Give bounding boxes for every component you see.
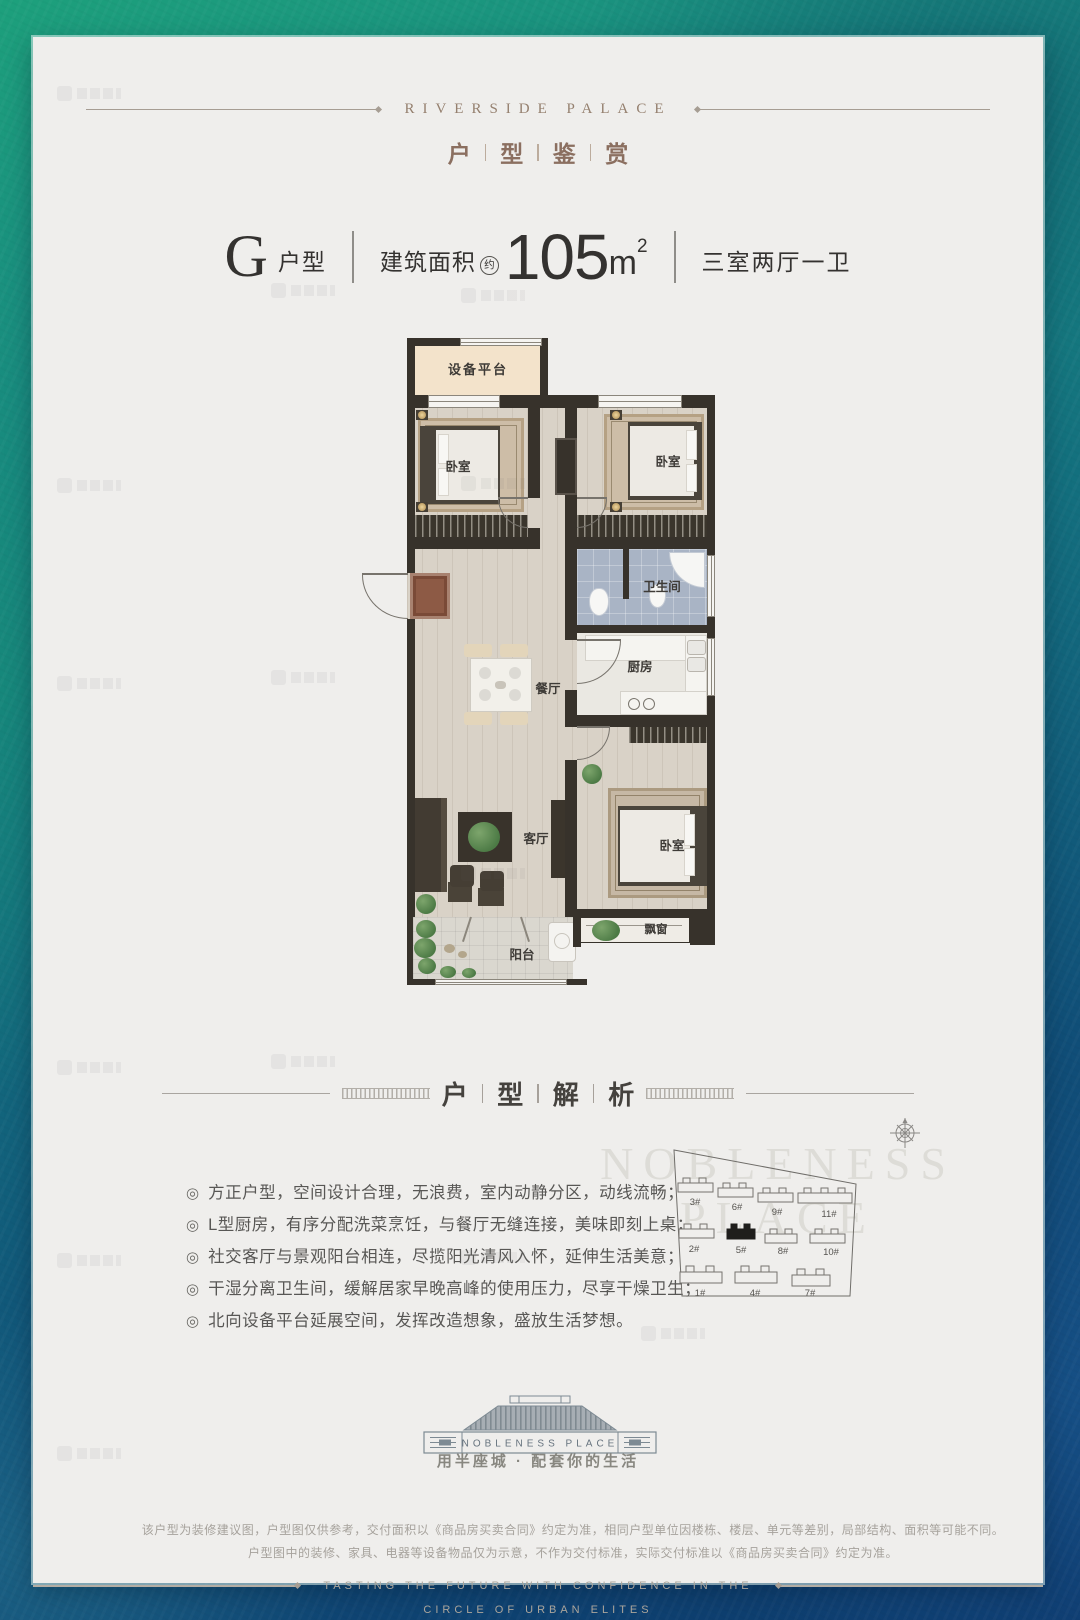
building-label: 2# — [689, 1244, 700, 1255]
bullet-icon: ◎ — [186, 1280, 199, 1299]
divider-tick — [537, 1084, 539, 1103]
bullet-icon: ◎ — [186, 1248, 199, 1267]
chair — [500, 644, 528, 657]
bullet-icon: ◎ — [186, 1184, 199, 1203]
bullet-text: 北向设备平台延展空间，发挥改造想象，盛放生活梦想。 — [208, 1312, 633, 1331]
footer-english-line2: CIRCLE OF URBAN ELITES — [423, 1604, 652, 1616]
floorplan: 设备平台 卧室 卧室 卫生间 厨房 餐厅 客厅 卧室 飘窗 阳台 — [352, 322, 724, 990]
layout-desc: 三室两厅一卫 — [702, 243, 852, 277]
footer-english: TASTING THE FUTURE WITH CONFIDENCE IN TH… — [33, 1580, 1043, 1592]
wall — [540, 338, 548, 395]
plant — [462, 968, 476, 978]
divider-line — [162, 1093, 330, 1094]
roof-cap-end — [561, 1396, 570, 1403]
divider-line — [86, 109, 378, 111]
plant — [416, 920, 436, 938]
plant — [416, 894, 436, 914]
pebble — [444, 944, 455, 953]
watermark — [461, 475, 525, 493]
building-outline — [735, 1266, 777, 1283]
analysis-char: 解 — [553, 1075, 579, 1112]
divider-bar — [674, 231, 676, 283]
window — [598, 395, 682, 408]
section-char: 鉴 — [553, 135, 576, 169]
room-label-bedroom: 卧室 — [436, 460, 480, 475]
bullet-text: 干湿分离卫生间，缓解居家早晚高峰的使用压力，尽享干燥卫生； — [208, 1280, 701, 1299]
building-label: 10# — [823, 1247, 840, 1258]
lamp — [612, 411, 620, 419]
room-label-dining: 餐厅 — [524, 682, 572, 697]
wall — [690, 917, 715, 945]
divider-line — [33, 1585, 297, 1587]
unit-letter-suffix: 户型 — [278, 243, 326, 277]
washer-door — [554, 933, 570, 949]
chair — [464, 712, 492, 725]
building-outline — [810, 1229, 845, 1243]
roof — [464, 1406, 616, 1430]
building-outline — [758, 1188, 793, 1202]
window — [435, 979, 567, 985]
centerpiece — [495, 681, 506, 689]
toilet — [589, 588, 609, 616]
wall — [573, 917, 581, 947]
room-label-balcony: 阳台 — [498, 948, 546, 963]
building-label: 5# — [736, 1245, 747, 1256]
chair — [500, 712, 528, 725]
building-outline — [678, 1178, 713, 1192]
bullet-icon: ◎ — [186, 1216, 199, 1235]
building-label: 7# — [805, 1288, 816, 1299]
divider-line — [698, 109, 990, 111]
building-label: 1# — [695, 1288, 706, 1299]
washer — [548, 922, 576, 962]
area-exponent: 2 — [637, 236, 648, 258]
burner — [628, 698, 640, 710]
wall — [528, 528, 540, 549]
wall — [407, 408, 415, 573]
bullet-icon: ◎ — [186, 1312, 199, 1331]
bullet-text: 社交客厅与景观阳台相连，尽揽阳光清风入怀，延伸生活美意； — [208, 1248, 684, 1267]
lamp — [418, 503, 426, 511]
analysis-char: 户 — [442, 1075, 468, 1112]
building-outline — [680, 1266, 722, 1283]
wall — [407, 619, 415, 917]
section-char: 型 — [500, 135, 523, 169]
section-char: 赏 — [605, 135, 628, 169]
building-label: 4# — [750, 1288, 761, 1299]
area-label: 建筑面积 — [380, 243, 476, 277]
kitchen-sink — [687, 657, 706, 672]
poster-page: RIVERSIDE PALACE 户 型 鉴 赏 G 户型 建筑面积 约 105… — [0, 0, 1080, 1620]
plate — [479, 689, 491, 701]
window — [707, 555, 715, 617]
building-label: 8# — [778, 1246, 789, 1257]
roof-cap-end — [510, 1396, 519, 1403]
room-label-bathroom: 卫生间 — [633, 580, 691, 595]
room-label-bay-window: 飘窗 — [634, 923, 678, 938]
watermark — [57, 1252, 121, 1270]
brand-title: RIVERSIDE PALACE — [404, 101, 671, 118]
wet-dry-divider-wall — [623, 549, 629, 599]
divider-tick — [593, 1084, 595, 1103]
building-outline — [765, 1229, 797, 1243]
sofa — [415, 798, 447, 892]
entry-mat — [410, 573, 450, 619]
area-unit: m — [609, 244, 637, 283]
dining-table — [470, 658, 532, 712]
divider-tick — [590, 144, 592, 161]
building-outline — [792, 1269, 830, 1286]
plant — [414, 938, 436, 958]
wall — [577, 537, 707, 549]
plant — [418, 958, 436, 974]
plant — [592, 920, 620, 941]
building-highlighted — [727, 1224, 755, 1239]
building-label: 11# — [821, 1209, 837, 1220]
watermark — [57, 477, 121, 495]
divider-tick — [482, 1084, 484, 1103]
watermark — [461, 1249, 525, 1267]
stripe-ornament — [342, 1088, 430, 1099]
wall — [577, 625, 707, 633]
section-title-chars: 户 型 鉴 赏 — [448, 135, 629, 169]
footer-english-line2-wrap: CIRCLE OF URBAN ELITES — [33, 1600, 1043, 1618]
unit-summary: G 户型 建筑面积 约 105 m 2 三室两厅一卫 — [33, 227, 1043, 285]
disclaimer-line: 户型图中的装修、家具、电器等设备物品仅为示意，不作为交付标准，实际交付标准以《商… — [108, 1542, 1038, 1565]
room-label-bedroom: 卧室 — [650, 839, 694, 854]
burner — [643, 698, 655, 710]
room-label-living: 客厅 — [510, 832, 562, 847]
divider-bar — [352, 231, 354, 283]
logo-tagline: 用半座城 · 配套你的生活 — [33, 1450, 1043, 1471]
window — [707, 638, 715, 696]
wardrobe — [629, 727, 707, 743]
unit-letter: G — [224, 227, 267, 285]
wall — [415, 537, 528, 549]
building-label: 3# — [690, 1197, 701, 1208]
watermark — [57, 1059, 121, 1077]
poster-card: RIVERSIDE PALACE 户 型 鉴 赏 G 户型 建筑面积 约 105… — [33, 37, 1043, 1583]
divider-line — [779, 1585, 1043, 1587]
watermark — [271, 1053, 335, 1071]
plate — [509, 667, 521, 679]
watermark — [271, 282, 335, 300]
room-label-platform: 设备平台 — [442, 362, 514, 377]
shaft — [555, 438, 577, 495]
pebble — [458, 951, 467, 958]
room-label-kitchen: 厨房 — [614, 660, 666, 675]
building-outline — [798, 1188, 852, 1203]
watermark — [271, 669, 335, 687]
plate — [509, 689, 521, 701]
building-label: 9# — [772, 1207, 783, 1218]
plant — [440, 966, 456, 978]
section-char: 户 — [448, 135, 471, 169]
stove — [624, 693, 658, 713]
divider-tick — [485, 144, 487, 161]
lamp — [612, 503, 620, 511]
site-map: 3# 6# 9# 11# 2# 5# 8# 10# 1# 4# 7# — [640, 1093, 940, 1308]
wall — [528, 408, 540, 498]
lamp — [418, 411, 426, 419]
footer-english-line1: TASTING THE FUTURE WITH CONFIDENCE IN TH… — [323, 1580, 752, 1592]
section-title: 户 型 鉴 赏 — [33, 135, 1043, 169]
kitchen-sink — [687, 640, 706, 655]
room-label-bedroom: 卧室 — [646, 455, 690, 470]
area-approx-badge: 约 — [480, 256, 499, 275]
logo-text: NOBLENESS PLACE — [462, 1439, 619, 1450]
window — [460, 338, 542, 346]
watermark — [57, 1445, 121, 1463]
watermark — [57, 85, 121, 103]
watermark — [461, 287, 525, 305]
plate — [479, 667, 491, 679]
window — [428, 395, 500, 408]
brand-header: RIVERSIDE PALACE — [33, 101, 1043, 118]
chair — [464, 644, 492, 657]
analysis-char: 析 — [608, 1075, 634, 1112]
wall — [577, 909, 707, 917]
plant — [582, 764, 602, 784]
building-label: 6# — [732, 1202, 743, 1213]
plant — [468, 822, 500, 852]
building-outline — [718, 1183, 753, 1197]
wall — [407, 917, 413, 985]
watermark — [57, 675, 121, 693]
wall — [407, 338, 415, 395]
building-outline — [679, 1224, 714, 1238]
watermark — [461, 865, 525, 883]
disclaimer-line: 该户型为装修建议图，户型图仅供参考，交付面积以《商品房买卖合同》约定为准，相同户… — [108, 1519, 1038, 1542]
disclaimer: 该户型为装修建议图，户型图仅供参考，交付面积以《商品房买卖合同》约定为准，相同户… — [108, 1519, 1038, 1565]
divider-tick — [537, 144, 539, 161]
analysis-char: 型 — [497, 1075, 523, 1112]
door-arc — [362, 575, 408, 619]
area-value: 105 — [505, 229, 609, 285]
watermark — [641, 1325, 705, 1343]
compass-icon — [890, 1118, 920, 1148]
analysis-title-chars: 户 型 解 析 — [442, 1075, 635, 1112]
logo-pavilion: NOBLENESS PLACE — [410, 1392, 670, 1456]
wall — [565, 760, 577, 917]
